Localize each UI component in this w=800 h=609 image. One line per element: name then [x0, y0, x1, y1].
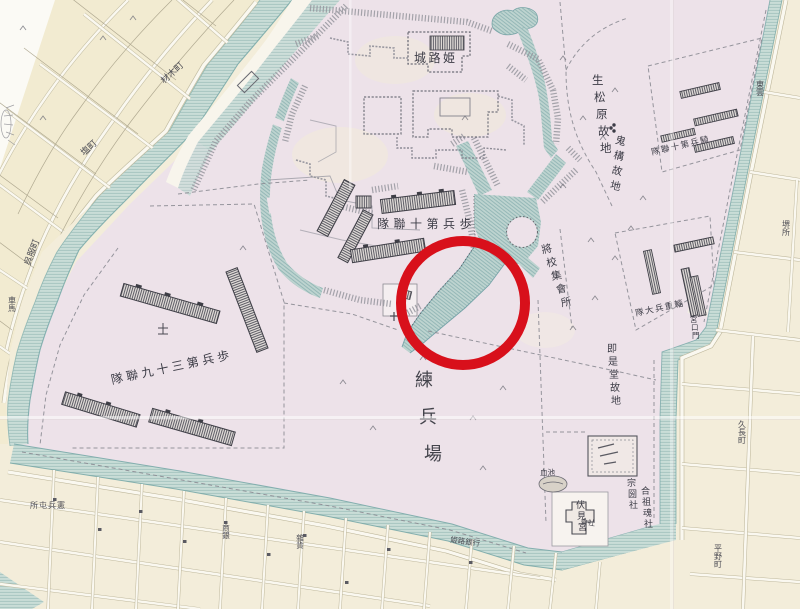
- svg-text:堺所: 堺所: [782, 219, 791, 237]
- svg-text:社: 社: [629, 499, 638, 510]
- svg-text:所屯兵憲: 所屯兵憲: [30, 500, 66, 510]
- svg-text:故: 故: [598, 124, 610, 138]
- svg-text:平野町: 平野町: [714, 544, 723, 568]
- svg-text:血池: 血池: [540, 467, 555, 477]
- svg-text:伏: 伏: [576, 499, 585, 510]
- svg-text:原: 原: [596, 109, 608, 121]
- svg-text:堂: 堂: [609, 369, 619, 381]
- svg-text:祖: 祖: [642, 496, 651, 507]
- svg-text:久長町: 久長町: [738, 419, 747, 444]
- svg-text:門: 門: [692, 331, 700, 340]
- svg-text:場: 場: [424, 444, 442, 464]
- svg-text:練: 練: [415, 370, 433, 390]
- svg-text:隊聯十第兵歩: 隊聯十第兵歩: [377, 216, 476, 231]
- svg-text:雜貨: 雜貨: [295, 533, 304, 551]
- svg-text:車馬: 車馬: [8, 295, 17, 313]
- svg-text:即: 即: [607, 343, 617, 355]
- svg-text:地: 地: [600, 142, 612, 155]
- svg-text:宗: 宗: [627, 477, 636, 488]
- svg-text:松: 松: [594, 90, 606, 104]
- svg-text:商銀: 商銀: [221, 523, 230, 541]
- svg-text:生: 生: [592, 73, 604, 87]
- svg-text:地: 地: [611, 394, 621, 407]
- svg-text:城路姫: 城路姫: [414, 50, 458, 65]
- svg-text:東雲: 東雲: [756, 79, 765, 97]
- svg-text:是: 是: [608, 356, 618, 368]
- svg-text:圀: 圀: [628, 489, 637, 499]
- svg-text:魂: 魂: [643, 507, 652, 518]
- svg-text:社: 社: [644, 518, 653, 529]
- svg-text:故: 故: [610, 381, 620, 394]
- svg-text:合: 合: [641, 485, 650, 496]
